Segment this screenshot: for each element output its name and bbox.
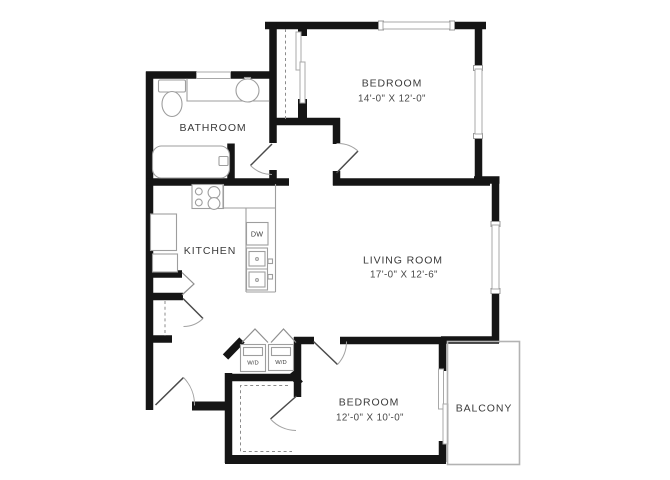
bedroom1-label: BEDROOM xyxy=(362,78,423,90)
bedroom1-top-window xyxy=(383,22,450,29)
washer-dryer-unit xyxy=(269,345,294,371)
bathroom-window xyxy=(197,72,231,79)
kitchen-sink xyxy=(247,248,273,290)
entry-door xyxy=(156,378,195,406)
refrigerator xyxy=(151,214,178,272)
bathroom-label: BATHROOM xyxy=(179,122,246,134)
bedroom2-door xyxy=(314,342,347,365)
balcony-slider-panel xyxy=(439,369,444,409)
exterior-walls xyxy=(146,22,500,463)
bathroom-sink xyxy=(236,78,259,103)
washer-dryer-label: W/D xyxy=(275,360,287,366)
floor-plan-page: BEDROOM 14'-0" X 12'-0" BATHROOM KITCHEN… xyxy=(0,0,670,480)
floor-plan: BEDROOM 14'-0" X 12'-0" BATHROOM KITCHEN… xyxy=(0,0,670,480)
hall-closet-door xyxy=(183,299,203,327)
washer-dryer-unit xyxy=(241,345,266,372)
hall-closet-bifold-door xyxy=(182,273,194,296)
kitchen-label: KITCHEN xyxy=(184,245,236,257)
washer-dryer-label: W/D xyxy=(247,361,259,367)
bedroom1-right-window xyxy=(475,69,482,134)
balcony-label: BALCONY xyxy=(456,403,512,415)
wd-bifold-door xyxy=(271,329,296,343)
wd-bifold-door xyxy=(242,329,268,343)
bedroom1-dimensions: 14'-0" X 12'-0" xyxy=(358,94,426,105)
dishwasher-label: DW xyxy=(251,230,263,239)
closet-bypass-door xyxy=(300,62,305,103)
stove xyxy=(192,185,224,210)
bedroom2-dimensions: 12'-0" X 10'-0" xyxy=(336,413,404,424)
living-room-dimensions: 17'-0" X 12'-6" xyxy=(370,270,438,281)
toilet xyxy=(159,80,186,117)
bedroom2-label: BEDROOM xyxy=(339,397,400,409)
bathroom-door xyxy=(251,144,273,175)
bedroom1-door xyxy=(337,143,359,173)
living-room-window xyxy=(492,225,499,289)
living-room-label: LIVING ROOM xyxy=(363,255,443,267)
bathtub xyxy=(153,146,230,178)
bedroom2-closet-door xyxy=(271,396,297,431)
